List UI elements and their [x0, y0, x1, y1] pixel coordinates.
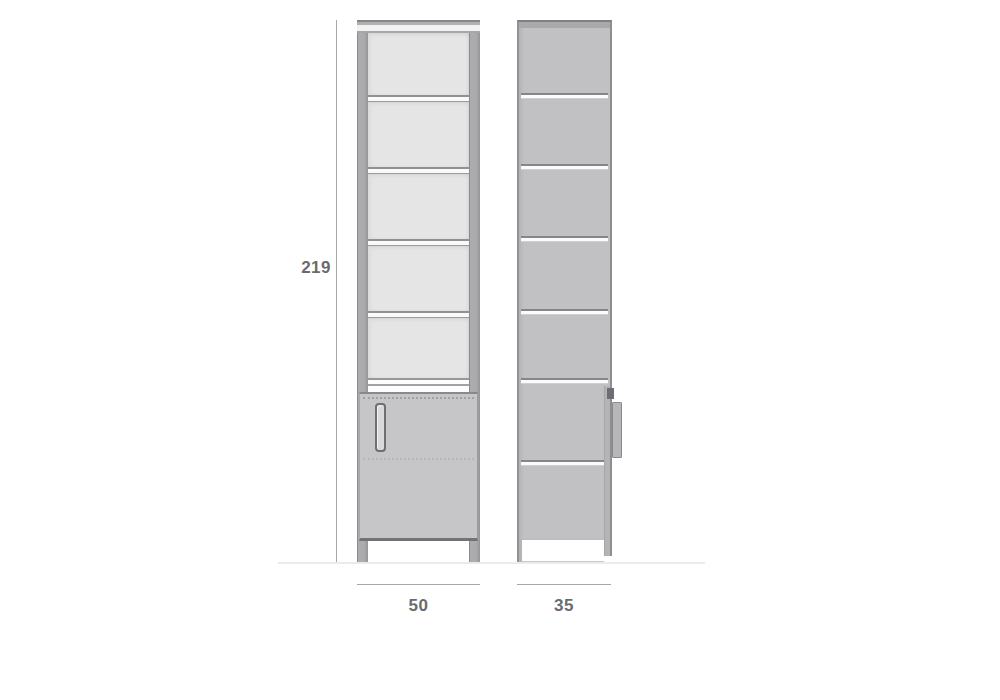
shelf-divider	[368, 167, 469, 174]
side-handle	[612, 402, 622, 458]
side-door-front-edge	[604, 386, 612, 556]
front-plinth	[368, 541, 469, 563]
width-dimension-line	[357, 584, 480, 585]
side-body-panel	[517, 20, 612, 540]
shelf-compartment	[368, 174, 469, 239]
cabinet-side-view	[517, 20, 612, 563]
shelf-compartment	[368, 246, 469, 311]
side-shelf-gap	[521, 309, 608, 315]
width-dimension-label: 50	[357, 596, 480, 616]
shelf-divider	[368, 311, 469, 318]
door-handle	[375, 403, 386, 452]
door-dotted-line-top	[363, 397, 474, 399]
depth-dimension-line	[517, 584, 611, 585]
height-dimension-line	[336, 20, 337, 563]
dimension-diagram: 219	[0, 0, 1000, 700]
side-left-leg	[517, 540, 522, 563]
cabinet-front-view	[357, 20, 480, 563]
shelf-compartment	[368, 318, 469, 378]
door-top-rail-line	[368, 384, 469, 386]
side-shelf-gap	[521, 93, 608, 99]
shelf-divider	[368, 239, 469, 246]
depth-dimension-label: 35	[517, 596, 611, 616]
front-top-panel	[357, 20, 480, 33]
side-plinth	[521, 540, 604, 562]
height-dimension-label: 219	[285, 258, 331, 278]
side-handle-mount	[607, 388, 614, 399]
side-shelf-gap	[521, 378, 608, 384]
cabinet-door	[359, 392, 478, 541]
front-shelf-area	[368, 33, 469, 392]
ground-line	[278, 562, 705, 564]
shelf-compartment	[368, 33, 469, 95]
side-shelf-gap	[521, 460, 608, 466]
shelf-divider	[368, 95, 469, 102]
side-shelf-gap	[521, 164, 608, 170]
side-shelf-gap	[521, 236, 608, 242]
shelf-compartment	[368, 102, 469, 167]
side-top-edge	[519, 22, 610, 28]
door-top-rail	[368, 378, 469, 392]
door-dotted-line-middle	[363, 458, 474, 460]
